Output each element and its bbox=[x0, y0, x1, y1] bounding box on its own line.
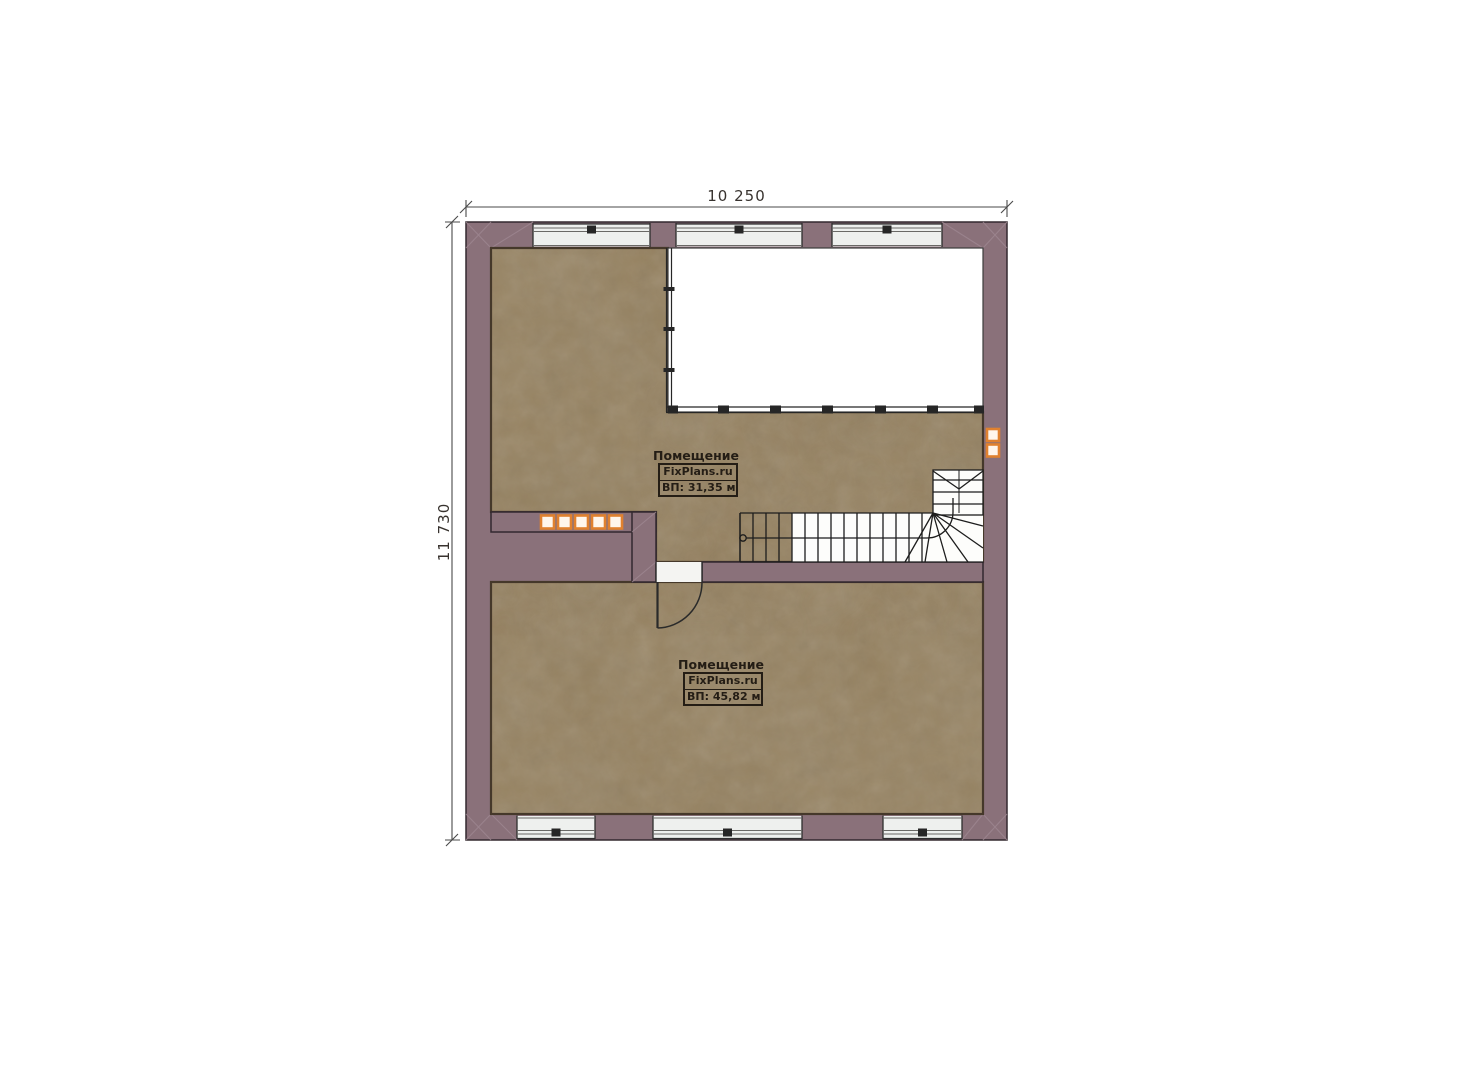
bottom-windows bbox=[517, 816, 962, 840]
room-1-title: Помещение bbox=[646, 448, 746, 463]
room-2-title: Помещение bbox=[671, 657, 771, 672]
room-1-info-box: FixPlans.ru ВП: 31,35 м² bbox=[658, 463, 738, 497]
height-dimension-label: 11 730 bbox=[435, 492, 453, 572]
floor-plan-drawing bbox=[0, 0, 1473, 1080]
window bbox=[676, 223, 802, 247]
window bbox=[883, 816, 962, 840]
window bbox=[533, 223, 650, 247]
floor-plan-page: 10 250 11 730 Помещение FixPlans.ru ВП: … bbox=[0, 0, 1473, 1080]
room-1-brand: FixPlans.ru bbox=[660, 465, 736, 481]
room-2-brand: FixPlans.ru bbox=[685, 674, 761, 690]
room-2-info-box: FixPlans.ru ВП: 45,82 м² bbox=[683, 672, 763, 706]
window bbox=[517, 816, 595, 840]
interior-wall-lower bbox=[702, 562, 983, 582]
top-windows bbox=[533, 223, 942, 247]
window bbox=[832, 223, 942, 247]
window bbox=[653, 816, 802, 840]
void-opening bbox=[664, 248, 985, 414]
room-2-area: ВП: 45,82 м² bbox=[685, 690, 761, 705]
wall-post-markers bbox=[541, 516, 622, 529]
room-1-area: ВП: 31,35 м² bbox=[660, 481, 736, 496]
width-dimension-label: 10 250 bbox=[466, 187, 1007, 205]
